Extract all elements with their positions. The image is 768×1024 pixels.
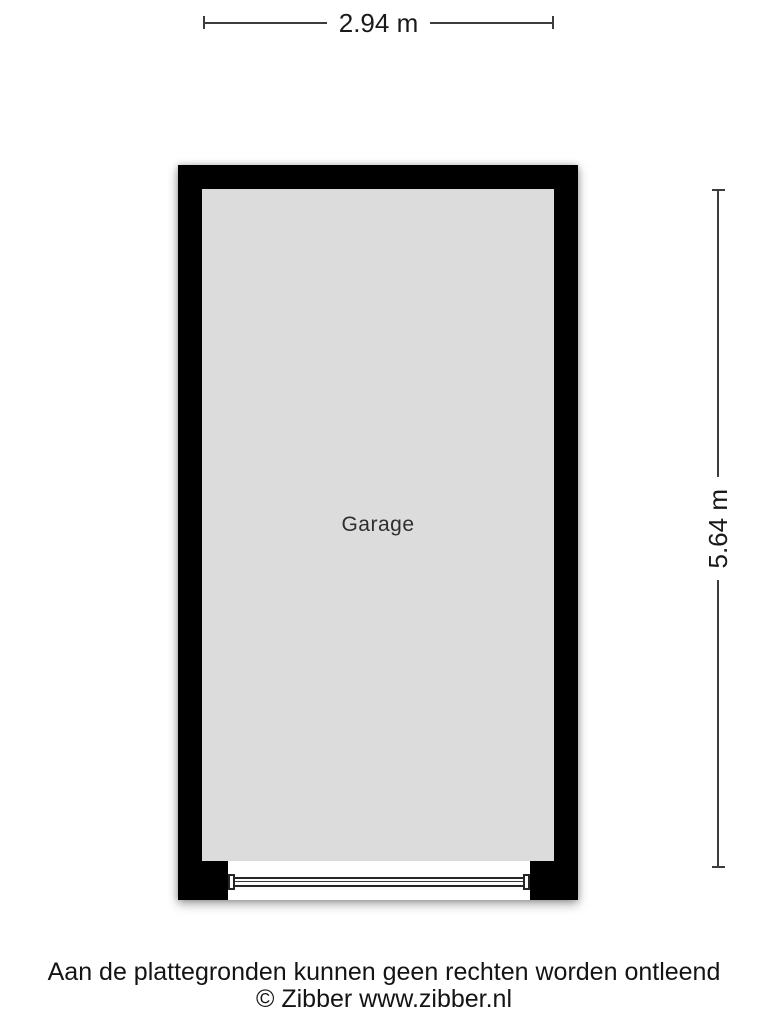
garage-door: [228, 874, 530, 890]
room-label: Garage: [341, 513, 414, 537]
floorplan-canvas: 2.94 m Garage 5.64 m Aan de plattegronde…: [0, 0, 768, 1024]
garage-room: Garage: [178, 165, 578, 900]
door-cap-left: [228, 874, 235, 890]
garage-door-opening: [228, 861, 530, 900]
room-interior: Garage: [202, 189, 554, 861]
height-dimension-label: 5.64 m: [705, 477, 731, 581]
door-cap-right: [523, 874, 530, 890]
footer-disclaimer: Aan de plattegronden kunnen geen rechten…: [0, 959, 768, 986]
footer: Aan de plattegronden kunnen geen rechten…: [0, 959, 768, 1013]
footer-copyright: © Zibber www.zibber.nl: [0, 986, 768, 1013]
dimension-line-segment: [717, 580, 719, 866]
dimension-tick-bottom: [712, 866, 725, 868]
width-dimension-label: 2.94 m: [327, 10, 431, 36]
dimension-line-segment: [430, 22, 552, 24]
dimension-line-segment: [205, 22, 327, 24]
height-dimension: 5.64 m: [710, 189, 726, 868]
door-panel: [235, 877, 523, 887]
dimension-line-segment: [717, 191, 719, 477]
width-dimension: 2.94 m: [203, 9, 554, 36]
dimension-tick-right: [552, 16, 554, 29]
